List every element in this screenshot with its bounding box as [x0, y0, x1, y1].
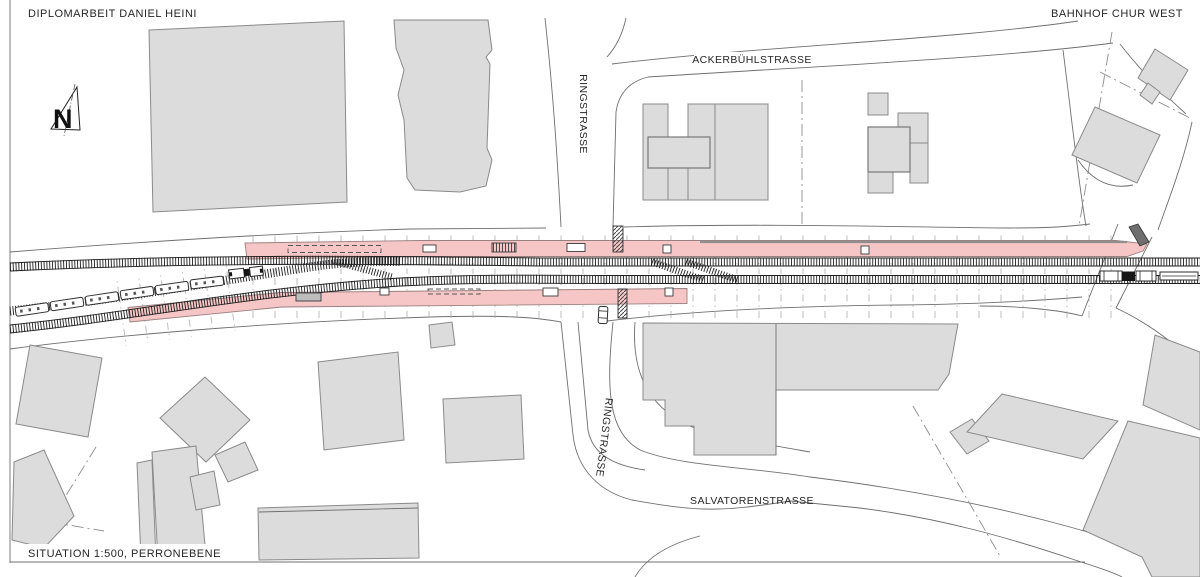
- locomotive-east: [1136, 271, 1156, 281]
- salvatorenstrasse-branch-sw: [635, 536, 700, 577]
- ne-street-east-edge-2: [1158, 122, 1192, 230]
- north-arrow-letter: N: [53, 104, 73, 134]
- platform-kiosk: [665, 288, 673, 296]
- platform-shelter: [296, 293, 321, 301]
- building: [12, 450, 74, 548]
- building: [868, 93, 888, 115]
- building: [668, 168, 688, 200]
- building: [16, 345, 102, 437]
- car-symbol: [598, 306, 608, 323]
- title-right: BAHNHOF CHUR WEST: [1051, 8, 1183, 20]
- corridor-north-boundary-east: [624, 224, 1090, 228]
- title-left: DIPLOMARBEIT DANIEL HEINI: [28, 8, 197, 20]
- street-label-ackerbuehlstrasse: ACKERBÜHLSTRASSE: [692, 54, 812, 66]
- platform-shelter: [423, 245, 436, 252]
- building: [215, 442, 258, 482]
- buildings-north: [149, 20, 1188, 212]
- north-arrow: N: [51, 84, 80, 136]
- building: [190, 471, 220, 510]
- building: [149, 21, 347, 212]
- train-coupler-block: [1122, 272, 1135, 282]
- street-label-ringstrasse-south: RINGSTRASSE: [593, 397, 615, 478]
- rail-corridor: [10, 224, 1200, 348]
- train-east: [1100, 271, 1198, 281]
- caption-scale: SITUATION 1:500, PERRONEBENE: [28, 548, 221, 560]
- building: [715, 104, 768, 200]
- building: [868, 172, 893, 193]
- building: [1143, 335, 1200, 430]
- building: [443, 395, 524, 463]
- ackerbuehlstrasse-north-edge: [612, 21, 1078, 64]
- building: [967, 394, 1118, 459]
- platform-kiosk: [861, 246, 869, 254]
- underpass-stair-south: [618, 289, 627, 318]
- building: [868, 127, 910, 172]
- train-car: [15, 303, 49, 317]
- locomotive-east: [1100, 271, 1122, 281]
- building: [643, 323, 958, 455]
- building: [429, 322, 455, 348]
- ringstrasse-north-east-edge-top: [607, 18, 626, 57]
- building: [394, 20, 492, 192]
- ringstrasse-north-west-edge: [545, 18, 561, 227]
- building: [1072, 107, 1160, 183]
- plan-sheet: N DIPLOMARBEIT DANIEL HEINI BAHNHOF CHUR…: [0, 0, 1200, 577]
- platform-shelter: [380, 288, 389, 295]
- platform-shelter: [543, 288, 558, 296]
- platform-kiosk: [663, 245, 671, 253]
- building-inner-court: [648, 137, 710, 168]
- building: [910, 143, 928, 183]
- building: [318, 352, 404, 450]
- platform-stair-hatched: [492, 243, 516, 252]
- building: [1083, 421, 1200, 577]
- platform-shelter: [567, 244, 585, 252]
- street-label-ringstrasse-north: RINGSTRASSE: [577, 74, 589, 154]
- underpass-stair-north: [613, 226, 623, 252]
- street-label-salvatorenstrasse: SALVATORENSTRASSE: [690, 495, 814, 507]
- site-plan-svg: N DIPLOMARBEIT DANIEL HEINI BAHNHOF CHUR…: [0, 0, 1200, 577]
- train-car: [50, 297, 84, 311]
